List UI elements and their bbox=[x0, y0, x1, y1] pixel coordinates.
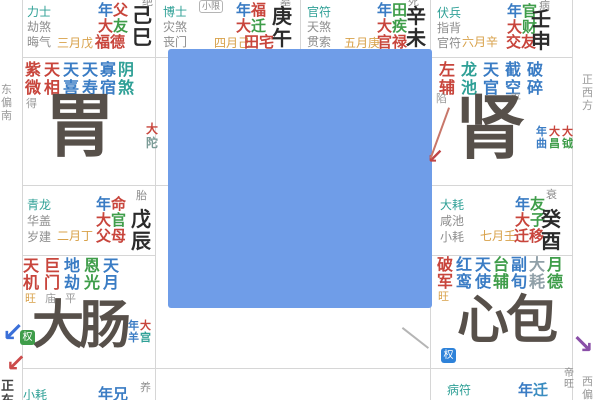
stem-branch-jisi: 己 巳 bbox=[132, 5, 152, 49]
star-tianji: 天 机 bbox=[23, 258, 39, 292]
flow-star-dachang2-line: 大 bbox=[549, 126, 560, 138]
minor-stars-guanlu-line: 官符 bbox=[307, 5, 331, 20]
flow-year-fude: 年父 bbox=[98, 2, 128, 19]
grid-line bbox=[155, 0, 156, 400]
minor-stars-fude-line: 劫煞 bbox=[27, 20, 51, 35]
minor-stars-tianzhai: 博士灾煞丧门 bbox=[163, 5, 187, 50]
arrow-red-left-icon: ↙ bbox=[6, 350, 26, 378]
flow-year-tianzhai-char: 福 bbox=[251, 2, 266, 19]
flow-star-dayue: 大钺 bbox=[562, 126, 573, 150]
flow-year-bl-char: 年 bbox=[98, 386, 113, 400]
status-xian-kidney: 陷 bbox=[436, 93, 447, 106]
badge-quan-blue: 权 bbox=[441, 348, 456, 363]
month-label-fude: 三月戊 bbox=[57, 37, 93, 51]
flow-star-dachang2-line: 昌 bbox=[549, 138, 560, 150]
flow-star-dagong-line: 大 bbox=[140, 320, 151, 332]
flow-star-datuo-line: 大 bbox=[146, 122, 158, 136]
minor-stars-qianyi: 大耗咸池小耗 bbox=[440, 197, 464, 245]
star-hongluan: 红 鸾 bbox=[456, 257, 472, 291]
flow-decade-fude-char: 大 bbox=[98, 18, 113, 35]
minor-stars-guanlu-line: 天煞 bbox=[307, 20, 331, 35]
flow-year-bl-char: 兄 bbox=[113, 386, 128, 400]
flow-star-dayue-line: 钺 bbox=[562, 138, 573, 150]
stem-branch-xinwei: 辛 未 bbox=[406, 6, 426, 50]
stem-branch-wuchen: 戊 辰 bbox=[131, 209, 151, 253]
star-fuxun: 副 旬 bbox=[511, 257, 527, 291]
minor-stars-jiaoyou: 伏兵指背官符 bbox=[437, 6, 461, 51]
flow-star-dagong-line: 宫 bbox=[140, 332, 151, 344]
minor-star-xiaohao-bl: 小耗 bbox=[23, 389, 47, 400]
compass-east-south: 东 偏 南 bbox=[1, 84, 12, 123]
flow-star-dagong: 大宫 bbox=[140, 320, 151, 344]
flow-year-br-char: 迁 bbox=[533, 382, 548, 399]
blue-overlay-panel bbox=[168, 49, 432, 308]
flow-year-guanlu-char: 年 bbox=[377, 2, 392, 19]
stage-diwang: 帝 旺 bbox=[564, 368, 574, 390]
stem-branch-gengwu: 庚 午 bbox=[272, 6, 292, 50]
star-taifu: 台 辅 bbox=[493, 257, 509, 291]
minor-stars-jiaoyou-line: 伏兵 bbox=[437, 6, 461, 21]
star-tianyue: 天 月 bbox=[103, 258, 119, 292]
flow-star-datuo: 大陀 bbox=[146, 122, 158, 150]
star-tianshi: 天 使 bbox=[475, 257, 491, 291]
arrow-purple-icon: ↘ bbox=[572, 330, 594, 360]
star-yuede: 月 德 bbox=[547, 257, 563, 291]
minor-stars-fumu-line: 华盖 bbox=[27, 213, 51, 229]
flow-year-qianyi-char: 年 bbox=[515, 196, 530, 213]
flow-star-dayue-line: 大 bbox=[562, 126, 573, 138]
flow-year-guanlu: 年田 bbox=[377, 2, 407, 19]
flow-decade-tianzhai: 大迁 bbox=[236, 18, 266, 35]
badge-quan-green-label: 权 bbox=[23, 333, 33, 343]
flow-decade-fumu-char: 大 bbox=[96, 212, 111, 229]
stage-yang: 养 bbox=[140, 382, 151, 395]
compass-west: 正 西 方 bbox=[582, 74, 593, 113]
badge-quan-green: 权 bbox=[20, 330, 35, 345]
star-jumen: 巨 门 bbox=[44, 258, 60, 292]
flow-year-tianzhai: 年福 bbox=[236, 2, 266, 19]
stage-mu: 墓 bbox=[280, 0, 291, 9]
flow-year-br: 年迁 bbox=[518, 382, 548, 399]
minor-stars-qianyi-line: 咸池 bbox=[440, 213, 464, 229]
flow-year-tianzhai-char: 年 bbox=[236, 2, 251, 19]
flow-year-guanlu-char: 田 bbox=[392, 2, 407, 19]
flow-decade-guanlu-char: 疾 bbox=[392, 18, 407, 35]
flow-star-nianqu-line: 年 bbox=[536, 126, 547, 138]
flow-year-jiaoyou-char: 年 bbox=[507, 3, 522, 20]
minor-stars-fumu: 青龙华盖岁建 bbox=[27, 197, 51, 245]
flow-star-nianyang-line: 羊 bbox=[128, 332, 139, 344]
flow-decade-qianyi-char: 大 bbox=[515, 212, 530, 229]
star-yinsha: 阴 煞 bbox=[118, 62, 134, 98]
flow-star-nianyang-line: 年 bbox=[128, 320, 139, 332]
month-label-fumu: 二月丁 bbox=[57, 230, 93, 244]
flow-year-fude-char: 父 bbox=[113, 2, 128, 19]
flow-year-fumu-char: 命 bbox=[111, 196, 126, 213]
flow-star-nianqu-line: 曲 bbox=[536, 138, 547, 150]
flow-decade-tianzhai-char: 大 bbox=[236, 18, 251, 35]
flow-decade-fude: 大友 bbox=[98, 18, 128, 35]
flow-decade-guanlu-char: 大 bbox=[377, 18, 392, 35]
star-dahao: 大 耗 bbox=[529, 257, 545, 291]
palace-name-fumu: 父母 bbox=[96, 228, 126, 245]
stage-bing: 病 bbox=[539, 0, 550, 13]
minor-stars-guanlu-line: 贯索 bbox=[307, 35, 331, 50]
star-enguang: 恩 光 bbox=[84, 258, 100, 292]
compass-east: 正 东 bbox=[1, 378, 14, 400]
minor-stars-jiaoyou-line: 官符 bbox=[437, 36, 461, 51]
stage-jue: 绝 bbox=[142, 0, 153, 9]
flow-decade-fumu-char: 官 bbox=[111, 212, 126, 229]
palace-name-qianyi: 迁移 bbox=[514, 228, 544, 245]
stage-si: 死 bbox=[408, 0, 419, 9]
status-de: 得 bbox=[26, 98, 37, 111]
flow-star-datuo-line: 陀 bbox=[146, 136, 158, 150]
compass-west-south: 西 偏 南 bbox=[582, 376, 593, 400]
minor-stars-fumu-line: 岁建 bbox=[27, 229, 51, 245]
star-pojun: 破 军 bbox=[437, 257, 453, 291]
flow-decade-fude-char: 友 bbox=[113, 18, 128, 35]
star-dijie: 地 劫 bbox=[64, 258, 80, 292]
flow-year-fumu-char: 年 bbox=[96, 196, 111, 213]
xiaoxian-button[interactable]: 小限 bbox=[199, 0, 223, 13]
star-ziwei: 紫 微 bbox=[25, 62, 41, 98]
watermark-pericardium: 心包 bbox=[457, 294, 555, 348]
minor-stars-guanlu: 官符天煞贯索 bbox=[307, 5, 331, 50]
flow-year-bl: 年兄 bbox=[98, 386, 128, 400]
flow-year-br-char: 年 bbox=[518, 382, 533, 399]
grid-line bbox=[22, 368, 573, 369]
flow-decade-fumu: 大官 bbox=[96, 212, 126, 229]
minor-stars-tianzhai-line: 灾煞 bbox=[163, 20, 187, 35]
minor-stars-fumu-line: 青龙 bbox=[27, 197, 51, 213]
minor-stars-qianyi-line: 大耗 bbox=[440, 197, 464, 213]
flow-year-fude-char: 年 bbox=[98, 2, 113, 19]
watermark-large-intestine: 大肠 bbox=[32, 299, 126, 353]
flow-decade-tianzhai-char: 迁 bbox=[251, 18, 266, 35]
ziwei-astrology-chart: 东 偏 南正 东正 西 方西 偏 南力士劫煞晦气年父大友三月戊福德己 巳绝博士灾… bbox=[0, 0, 600, 400]
connector-gray-line bbox=[402, 327, 429, 348]
stage-tai: 胎 bbox=[136, 190, 147, 203]
status-wang-xinbao: 旺 bbox=[438, 291, 449, 304]
minor-stars-fude: 力士劫煞晦气 bbox=[27, 5, 51, 50]
minor-star-bingfu-br: 病符 bbox=[447, 384, 471, 398]
minor-stars-jiaoyou-line: 指背 bbox=[437, 21, 461, 36]
watermark-kidney: 肾 bbox=[455, 92, 525, 164]
minor-stars-qianyi-line: 小耗 bbox=[440, 229, 464, 245]
grid-line bbox=[22, 255, 156, 256]
flow-star-dachang2: 大昌 bbox=[549, 126, 560, 150]
minor-stars-fude-line: 晦气 bbox=[27, 35, 51, 50]
xiaoxian-button-label: 小限 bbox=[202, 2, 220, 11]
month-label-qianyi: 七月壬 bbox=[480, 230, 516, 244]
stem-branch-guiyou: 癸 酉 bbox=[541, 209, 561, 253]
palace-name-fude: 福德 bbox=[95, 34, 125, 51]
stem-branch-renshen: 壬 申 bbox=[531, 9, 551, 53]
grid-line bbox=[430, 255, 573, 256]
month-label-jiaoyou: 六月辛 bbox=[462, 36, 498, 50]
badge-quan-blue-label: 权 bbox=[444, 351, 454, 361]
flow-decade-guanlu: 大疾 bbox=[377, 18, 407, 35]
minor-stars-tianzhai-line: 博士 bbox=[163, 5, 187, 20]
star-posui: 破 碎 bbox=[527, 62, 543, 98]
watermark-stomach: 胃 bbox=[45, 90, 115, 162]
flow-star-nianqu: 年曲 bbox=[536, 126, 547, 150]
stage-shuai: 衰 bbox=[546, 189, 557, 202]
minor-stars-fude-line: 力士 bbox=[27, 5, 51, 20]
flow-year-fumu: 年命 bbox=[96, 196, 126, 213]
flow-star-nianyang: 年羊 bbox=[128, 320, 139, 344]
minor-stars-tianzhai-line: 丧门 bbox=[163, 35, 187, 50]
